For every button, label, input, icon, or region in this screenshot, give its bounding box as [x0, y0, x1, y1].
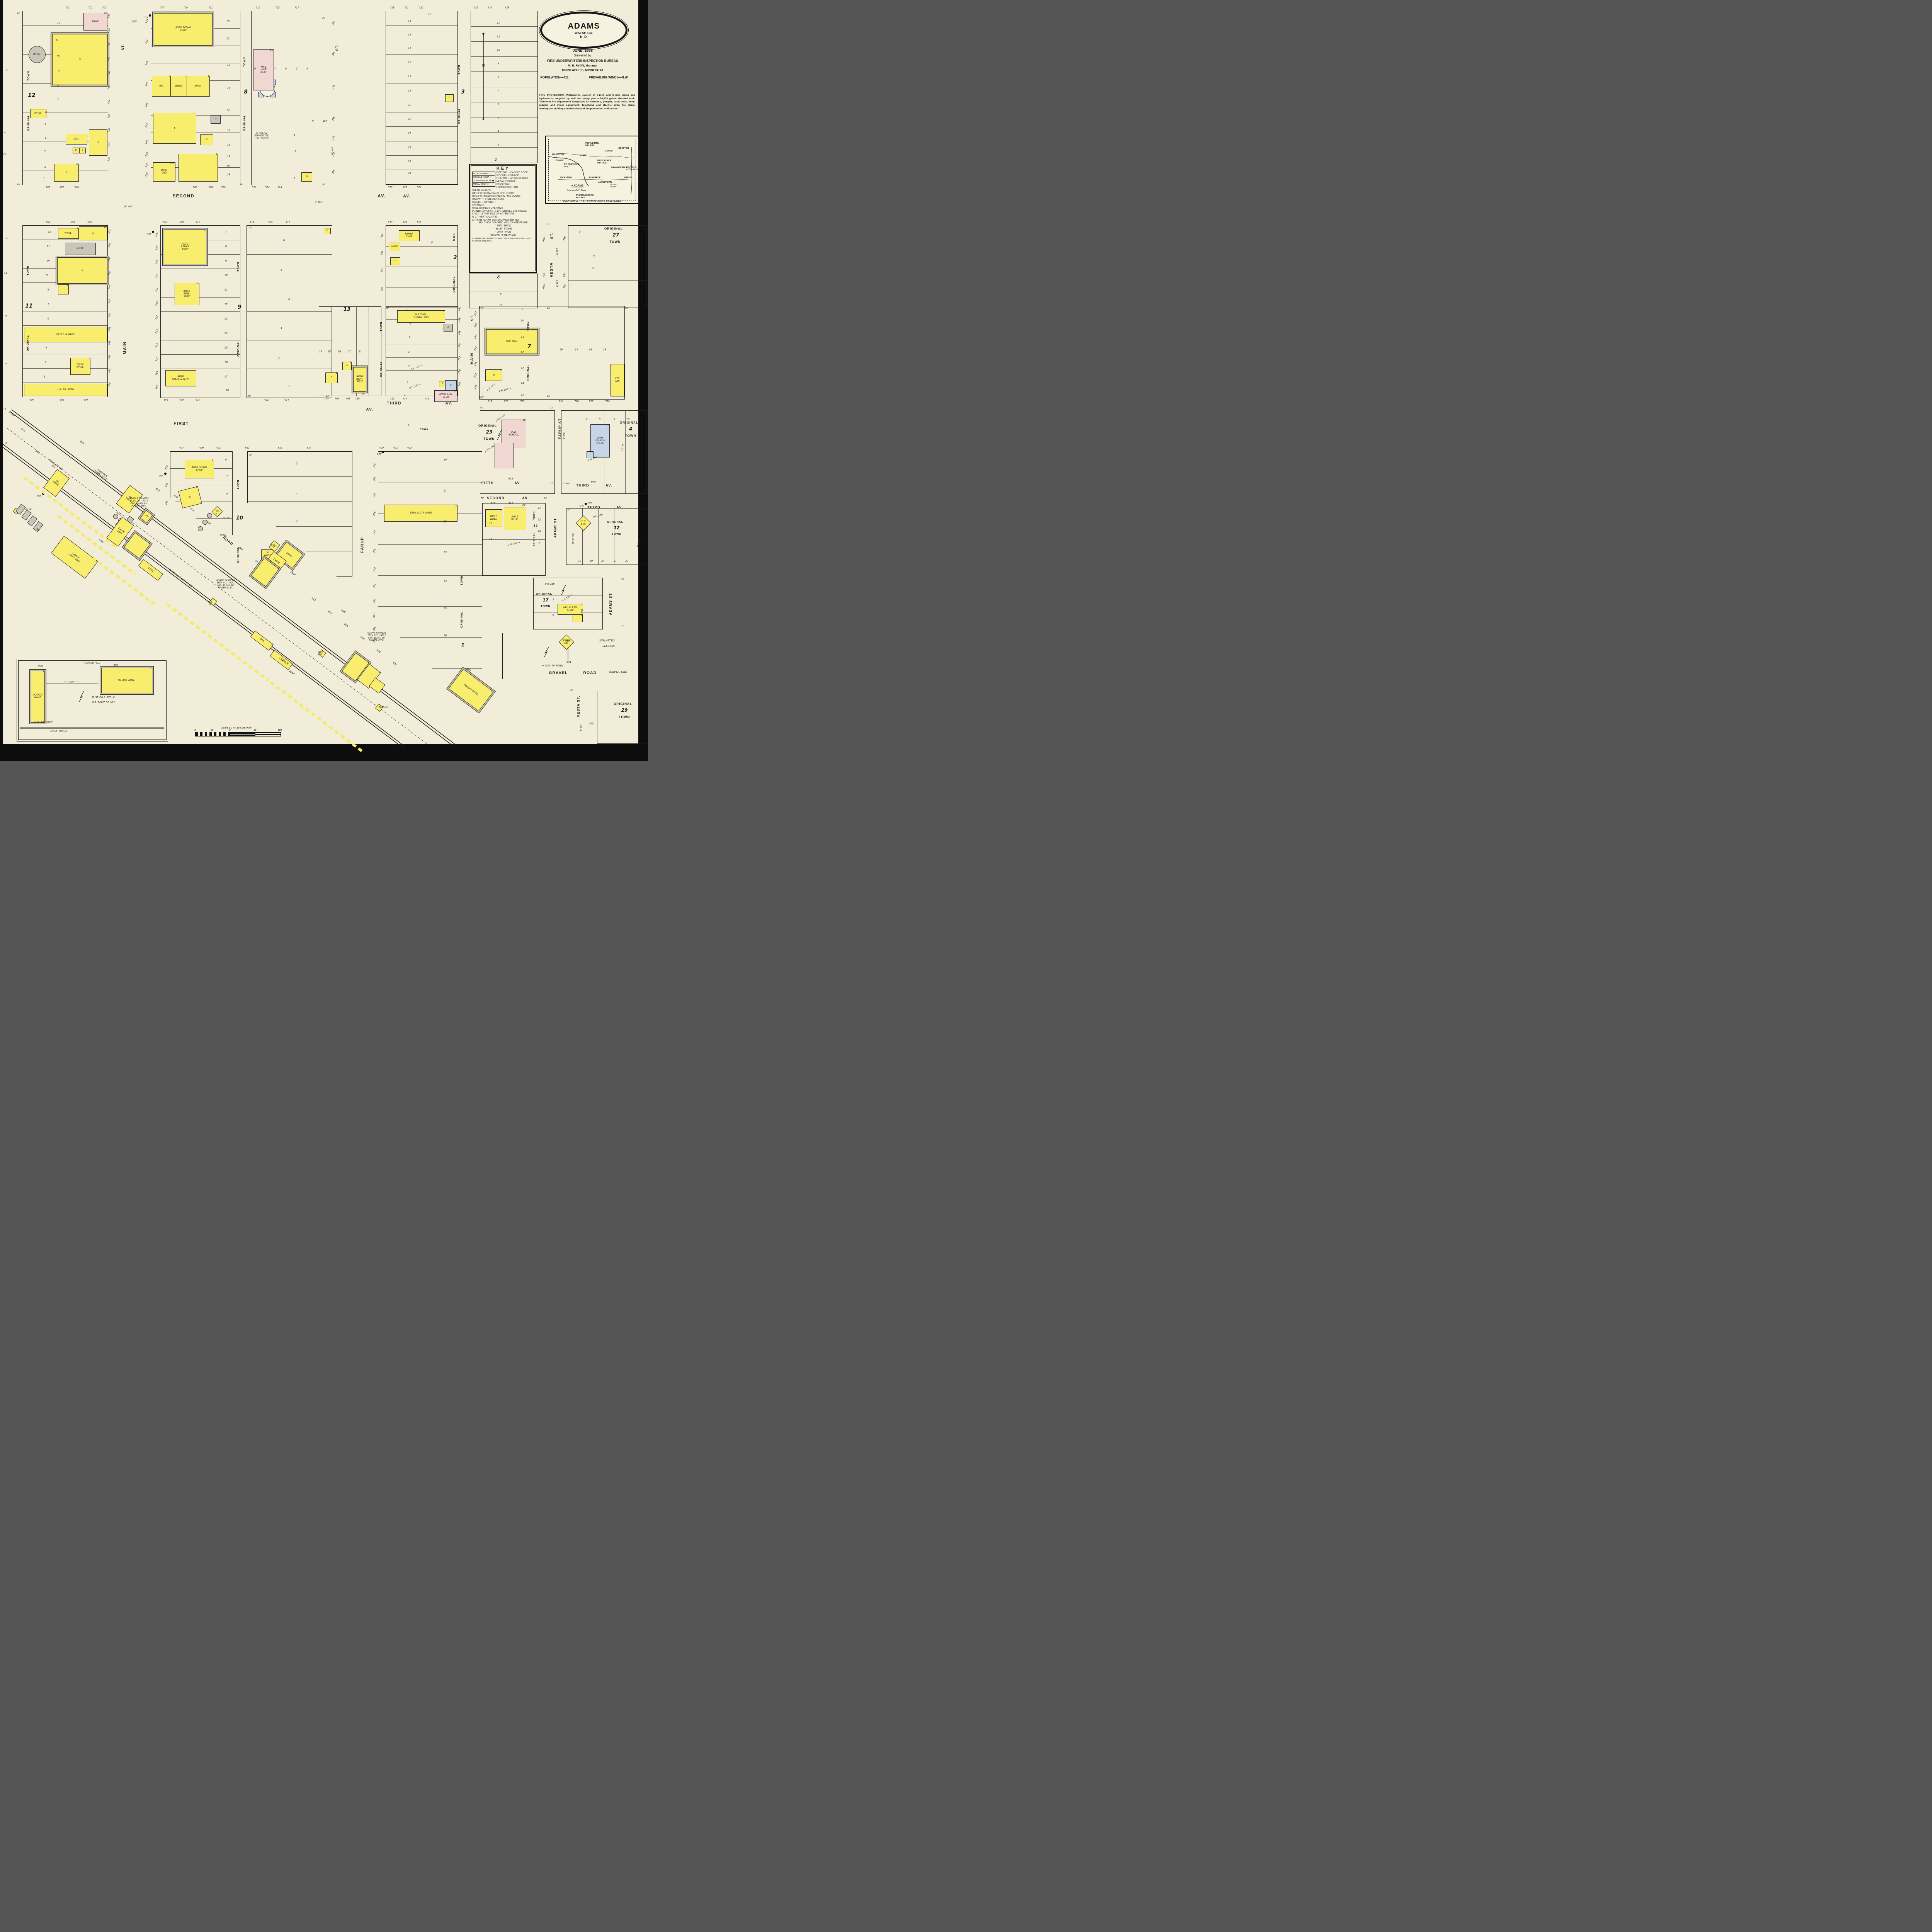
whse-building: WHSE.1 [58, 228, 79, 239]
lot-number: 13 [227, 87, 230, 89]
lot-number: 4 [306, 67, 308, 70]
address-label: 140 [107, 56, 111, 61]
lot-number: 6 [283, 239, 285, 241]
lot-number: 8 [226, 492, 228, 495]
map-label: M. ST. P.& S. STE. M. [92, 697, 116, 699]
lot-number: 11 [538, 518, 541, 521]
map-label: STANDARD OIL CO. [46, 459, 63, 473]
lot-number: 19 [408, 104, 411, 106]
inset-place-standing-rock-ind-res-: STANDING ROCK IND. RES. [576, 194, 594, 199]
lot-number: 16 [560, 348, 563, 351]
lot-line [23, 127, 108, 127]
address-label: 514 [265, 187, 269, 189]
address-label: 129 [155, 232, 159, 237]
map-label: ORIGINAL [527, 364, 530, 381]
address-label: 141 [145, 139, 149, 145]
map-label: 904 [566, 661, 571, 663]
building-annotation: 1 [67, 284, 68, 287]
lot-number: 1 [294, 177, 295, 180]
map-label: 815 [155, 487, 160, 492]
lot-number: 9 [46, 274, 48, 276]
building-label: D [327, 230, 328, 232]
map-label: 820 [376, 649, 381, 654]
lot-number: 3 [281, 327, 282, 330]
implt-whse-building: IMPLT. WHSE.1 [504, 507, 526, 530]
lot-number: 12 [538, 507, 541, 509]
address-label: 716 [425, 398, 429, 401]
scale-tick: 50 [254, 729, 257, 731]
hydrant-dot [382, 451, 384, 453]
building-annotation: 1 [491, 690, 493, 693]
oil-whse-building: OIL WHSE.1 [43, 469, 70, 497]
lot-number: 16 [224, 361, 228, 364]
address-label: 260 [332, 51, 336, 56]
lot-number: 10 [47, 259, 50, 262]
map-label: TOWN [527, 321, 530, 331]
coal-building: COAL1 [138, 559, 163, 581]
address-label: 211 [373, 583, 377, 588]
city-block [566, 508, 646, 565]
address-label: 252 [332, 152, 336, 157]
manager-name: M. B. RYON, Manager [568, 64, 597, 67]
dimension-mark: 20 [3, 132, 6, 134]
lot-number: 5 [409, 335, 410, 338]
map-label: FIRST [173, 422, 189, 427]
map-label: AV. [378, 194, 386, 199]
lot-line [386, 332, 457, 332]
inset-place-missouri: Missouri [556, 159, 565, 162]
d-building: D [301, 172, 312, 182]
building-annotation: 1B [454, 390, 457, 393]
building-annotation: 1 [88, 358, 90, 360]
lot-number: 15 [408, 47, 411, 49]
repair-shop-building: REPAIR SHOP1 [399, 230, 420, 241]
building-label: (1) LBR. SHED [58, 389, 74, 391]
lot-number: 13 [521, 366, 524, 369]
map-label: 23 [486, 430, 493, 435]
map-label: DUST HO. [379, 707, 388, 709]
inset-place-cannon-ball-river: Cannon Ball River [566, 189, 586, 192]
lot-number: 21 [408, 132, 411, 134]
dimension-mark: 20' [362, 393, 365, 395]
lot-line [252, 127, 332, 127]
address-label: 726 [574, 401, 578, 403]
lot-number: 18 [226, 165, 230, 167]
lot-number: 13 [224, 317, 228, 320]
lot-number: 20 [408, 117, 411, 120]
building-label: AUTO REPAIR SHOP [192, 466, 207, 471]
dimension-mark: 70' [481, 497, 484, 500]
building-label: S [450, 384, 452, 387]
scale-bar-solid [230, 732, 255, 736]
address-label: 725 [474, 7, 478, 10]
lot-number: 18 [589, 348, 592, 351]
scan-band-bottom [0, 744, 648, 761]
map-label: 801 [20, 427, 26, 432]
address-label: 723 [419, 7, 423, 10]
building-annotation: 1=2B [532, 329, 537, 332]
lot-number: 17 [224, 375, 228, 378]
building-label: S [206, 139, 207, 141]
dimension-mark: 20' [379, 639, 383, 641]
lot-number: 6 [225, 458, 227, 461]
building-annotation: 1 [105, 327, 107, 329]
lot-number: 3 [294, 134, 295, 136]
building-label: S [442, 383, 443, 385]
key-item: STABLE ▱ SKYLIGHT [472, 201, 534, 204]
lot-number: 14 [489, 537, 492, 540]
city-block [251, 11, 332, 185]
lot-number: 21 [614, 560, 617, 562]
whse-building: WHSE.1 [170, 76, 187, 97]
s-building: S [200, 134, 213, 145]
building-annotation: 1B [104, 226, 107, 229]
address-label: 154 [458, 343, 462, 348]
lot-number: 18 [328, 350, 331, 353]
building-label: OIL WHSE. [52, 479, 61, 488]
address-label: 720 [504, 401, 508, 403]
map-label: THIRD [387, 401, 401, 406]
building-annotation: 1 [456, 505, 457, 507]
address-label: 136 [107, 85, 111, 90]
address-label: 610 [196, 399, 200, 402]
key-legend-line: " RED " BRICK [472, 225, 534, 228]
address-label: 730 [605, 401, 609, 403]
building-annotation: 2B [523, 420, 526, 422]
inset-place--adams: ● ADAMS [571, 185, 583, 187]
address-label: 504 [74, 187, 78, 189]
building-label: S [66, 172, 67, 174]
lot-number: 12 [444, 520, 447, 523]
building-label: VAC. [74, 138, 79, 141]
building-label: A [346, 365, 347, 367]
address-label: 103 [165, 483, 169, 488]
dimension-mark: 75' [428, 14, 432, 16]
building-annotation: 1 [500, 369, 502, 372]
map-label: ST. [550, 233, 554, 239]
map-label: 9 [238, 304, 241, 310]
building-annotation: 1 [581, 604, 582, 606]
scale-tick: 0 [194, 729, 196, 731]
dimension-mark: 21 [3, 153, 6, 156]
vac-blksm-shop-building: VAC. BLKSM. SHOP1 [558, 604, 583, 615]
address-label: 209 [373, 599, 377, 604]
lot-number: 8 [599, 418, 600, 420]
dimension-mark: 20' [249, 227, 252, 229]
address-label: 621 [393, 447, 398, 450]
lot-line [386, 370, 457, 371]
map-label: 902 [114, 664, 118, 667]
inset-place-williston: WILLISTON [552, 153, 564, 156]
lot-number: 3 [408, 365, 410, 367]
map-label: 6" W.P. [8, 411, 15, 417]
inset-place-dickinson: DICKINSON [560, 177, 572, 179]
lot-number: 8 [431, 241, 433, 244]
dimension-mark: 20' [326, 395, 330, 398]
address-label: 606 [164, 399, 168, 402]
lot-number: 14 [226, 109, 230, 112]
address-label: 221 [373, 493, 377, 498]
address-label: 107 [155, 384, 159, 389]
map-label: TOWN [380, 321, 383, 331]
address-label: 152 [458, 356, 462, 361]
address-label: 623 [407, 447, 412, 450]
lot-number: 13 [444, 551, 447, 554]
hydrant-label: D.H. [580, 505, 584, 507]
address-label: 513 [250, 221, 254, 224]
address-label: 714 [403, 398, 407, 401]
building-label: VAC. BLKSM. SHOP [563, 607, 578, 612]
map-label: TOWN [243, 57, 247, 66]
building-annotation: 1 [290, 663, 293, 665]
lot-number: 3 [45, 361, 46, 364]
address-label: 104 [108, 354, 112, 359]
building-annotation: 1 [271, 643, 273, 646]
address-label: 137 [145, 163, 149, 168]
implt-repr-shop-building: IMPLT. REPR. SHOP1½ [175, 283, 199, 305]
address-label: 135 [145, 172, 149, 177]
inset-place-red-river-of-the-north: Red River of the North [626, 166, 639, 171]
lot-number: 20 [348, 350, 351, 353]
building-label: IMPLT. WHSE. [490, 515, 498, 520]
lot-number: 8 [553, 583, 554, 585]
compass-north-arrow: ◆ [482, 32, 485, 36]
map-label: 916 [491, 502, 495, 505]
lot-line [471, 87, 537, 87]
address-label: 611 [216, 447, 221, 450]
map-label: 11 [25, 303, 32, 309]
building-label: D [306, 176, 308, 179]
lot-number: 5 [296, 462, 298, 465]
lot-number: 3 [296, 520, 298, 523]
address-label: 157 [474, 373, 478, 378]
map-label: D.H. [588, 502, 593, 504]
key-roof-symbol-item: METAL ROOF ○ [473, 183, 495, 186]
dimension-mark: 75' [550, 407, 554, 409]
potato-whse-building: POTATO WHSE.1 [101, 668, 152, 693]
address-label: 100 [108, 382, 112, 387]
scale-bar-striped [255, 732, 281, 736]
map-label: 3 [461, 89, 465, 95]
building-label: DWG. 2ND [161, 169, 167, 174]
building-label: AUTO REPAIR SHOP [181, 243, 189, 251]
address-label: 123 [155, 273, 159, 278]
lot-number: 2 [44, 375, 45, 378]
key-item: OPGS WITH NON-STANDARD FIRE DOORS [472, 195, 534, 198]
lot-number: 10 [226, 20, 230, 22]
lot-number: 2 [295, 150, 296, 153]
lot-number: 9 [498, 62, 499, 65]
lot-number: 4 [498, 130, 499, 133]
lot-line [252, 156, 332, 156]
map-label: ST. [121, 44, 125, 51]
building-annotation: 1 [194, 113, 196, 115]
building-annotation: 3 [378, 672, 380, 674]
lot-number: 14 [521, 382, 524, 384]
map-label: TOWN [458, 65, 461, 74]
s-building: SB [445, 380, 457, 390]
map-label: 818 [359, 636, 364, 641]
map-label: WAY [289, 570, 296, 577]
address-label: 219 [373, 511, 377, 516]
building-label: (S) OFF. & WHSE. [56, 333, 76, 336]
scale-tick: 25 [211, 729, 214, 731]
address-label: 145 [145, 102, 149, 107]
building-label: FILG. STA. [580, 520, 586, 526]
s-building: S1B [79, 226, 107, 240]
building-label: EQUIP. WHSE. [77, 364, 84, 369]
map-label: 350' [565, 640, 570, 643]
building: 1 [58, 284, 69, 294]
key-title: KEY [472, 166, 534, 171]
lot-number: 9 [539, 541, 540, 544]
rr-platform-strip [166, 603, 270, 682]
building-annotation: 28 S [170, 162, 175, 165]
dimension-mark: 17 [3, 408, 6, 411]
address-label: 165 [474, 323, 478, 328]
key-note: COUNTING FROM LEFT TO RIGHT LOOKING AT B… [472, 238, 534, 242]
building-label: DRIVE WAY [116, 527, 125, 536]
map-label: 17 [543, 598, 548, 603]
map-label: ORIGINAL [458, 108, 461, 124]
lot-number: 11 [444, 489, 447, 492]
address-label: 615 [278, 447, 282, 450]
map-label: 11 [533, 524, 538, 528]
dimension-mark: 16 [5, 363, 7, 365]
building-label: S [82, 150, 83, 152]
map-label: (UNPLATTED) [609, 670, 628, 673]
map-label: THIRD [587, 505, 600, 509]
county-name: WALSH CO. [575, 31, 593, 35]
map-label: 6" W.P. [563, 432, 566, 440]
building-label: COAL [259, 638, 265, 643]
map-label: ORIGINAL [237, 340, 240, 357]
address-label: 132 [107, 114, 111, 119]
building-annotation: B [455, 380, 456, 383]
map-label: TOWN [27, 265, 30, 275]
address-label: 704 [324, 398, 328, 401]
lot-number: 9 [522, 308, 523, 310]
lot-number: 6 [553, 614, 554, 616]
address-label: 146 [107, 14, 111, 19]
lot-number: 7 [586, 418, 587, 420]
key-roof-symbols: № OF STORIES 2SHINGLE ROOF ×COMPOSITION … [472, 172, 495, 187]
location-inset-map: WILLISTONMissouriMINOTTURTLE MTS. IND. R… [545, 136, 639, 204]
rr-platform-strip [270, 681, 364, 753]
lot-number: 10 [497, 49, 500, 51]
whse-building: WHSE. [29, 46, 46, 63]
compass-rose: ⊗ [481, 63, 485, 68]
key-item: FRAME PARTITION [472, 186, 534, 189]
address-label: 111 [155, 357, 159, 362]
address-label: 608 [179, 399, 184, 402]
map-label: SPUR TRACK [50, 730, 67, 732]
fire-protection-note: FIRE PROTECTION: Waterworks system of 8-… [539, 94, 635, 111]
potato-whse-building: POTATO WHSE.1 [31, 671, 45, 723]
map-label: AV. [605, 483, 612, 487]
lot-number: 8 [48, 288, 49, 291]
map-label: 900 [38, 665, 43, 667]
dimension-mark: 75' [547, 223, 551, 225]
lot-number: 8 [57, 84, 59, 87]
map-label: ORIGINAL [620, 421, 638, 424]
building: 3 [124, 532, 151, 559]
lot-line [583, 411, 583, 493]
auto-repair-shop-building: AUTO REPAIR SHOP1 [154, 13, 213, 46]
lot-number: 15 [521, 393, 524, 396]
building-label: PUB. HALL [506, 340, 518, 343]
map-label: TOWN [453, 233, 456, 243]
building-label: ½ D [393, 260, 397, 262]
address-label: 161 [474, 346, 478, 351]
address-label: 122 [108, 229, 112, 234]
address-label: 612 [264, 399, 269, 402]
map-label: DUST HO. [318, 651, 323, 656]
map-label: ORIGINAL [607, 521, 623, 524]
map-label: VESTA [549, 262, 554, 277]
map-label: PU. HO. [26, 509, 33, 511]
building-annotation: 1B [104, 13, 107, 15]
address-label: 151 [145, 39, 149, 44]
map-label: AV. [514, 481, 521, 485]
lot-number: 4 [46, 346, 47, 349]
dimension-mark: 20' [249, 454, 252, 456]
map-label: ORIGINAL [461, 612, 464, 628]
building-label: WHSE. [33, 53, 41, 56]
lot-line [630, 509, 630, 565]
lot-number: 7 [225, 230, 227, 233]
city-block [469, 274, 538, 308]
amer-leg-club-building: AMER. LEG. CLUB1B [434, 390, 457, 402]
building-label: WHSE. [286, 552, 293, 558]
lot-number: 9 [216, 512, 217, 515]
map-label: ORIGINAL [536, 593, 552, 596]
building-label: P.O. [159, 85, 163, 88]
map-label: PU. HO. [223, 517, 230, 520]
building-annotation: 1 [208, 76, 209, 78]
vac-building: VAC. [66, 134, 87, 145]
lot-number: 17 [408, 75, 411, 78]
lot-number: 7 [579, 231, 580, 234]
lot-number: 8 [498, 76, 499, 78]
dimension-mark: 75' [480, 407, 483, 409]
address-label: 517 [286, 221, 290, 224]
lot-number: 10 [219, 534, 223, 536]
lot-line [151, 98, 240, 98]
map-label: ← ½ MI. TO TOWN [542, 665, 563, 668]
address-label: 510 [221, 187, 225, 189]
building-annotation: 1 [212, 460, 213, 462]
building-annotation: 1 [581, 614, 582, 617]
address-label: 225 [373, 463, 377, 468]
building-annotation: 18 [76, 164, 78, 166]
lot-line [386, 141, 457, 141]
building-label: D [331, 377, 333, 379]
inset-place-fargo: FARGO [624, 177, 632, 179]
address-label: 501 [46, 221, 50, 224]
map-label: (UNPLATTED) [83, 662, 100, 664]
map-label: 835 [340, 609, 346, 614]
address-label: 706 [335, 398, 339, 401]
map-label: MAIN [470, 352, 474, 364]
map-label: 8 [497, 275, 500, 280]
address-label: 134 [107, 99, 111, 104]
address-label: 512 [252, 187, 256, 189]
lot-number: 13 [489, 522, 492, 525]
map-label: TOWN [420, 429, 429, 431]
map-label: SECTION. [602, 645, 615, 648]
lot-number: 7 [498, 89, 499, 92]
